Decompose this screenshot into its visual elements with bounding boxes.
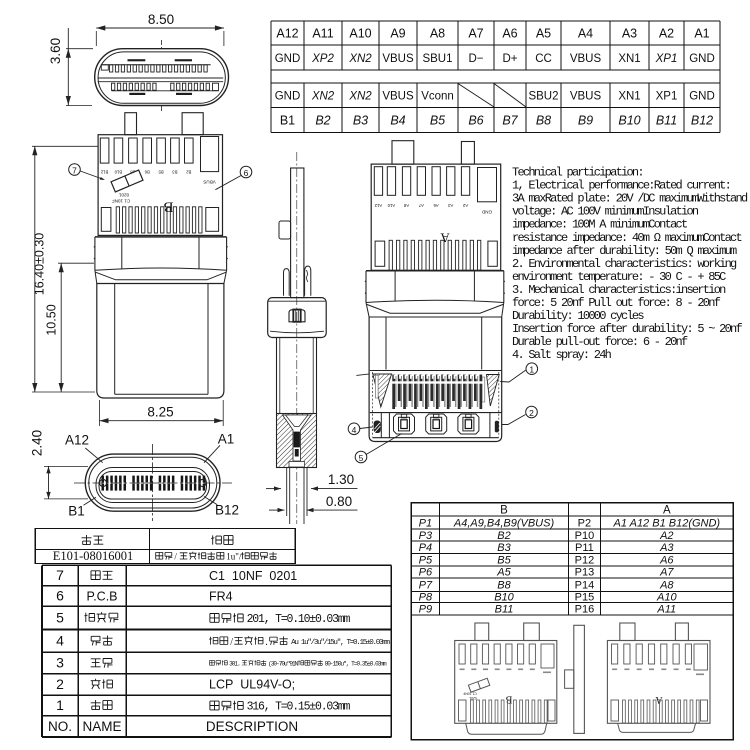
svg-text:8.50: 8.50 [148,12,174,27]
svg-text:A1 A12 B1 B12(GND): A1 A12 B1 B12(GND) [613,517,721,529]
svg-text:16.40±0.30: 16.40±0.30 [33,233,47,296]
svg-text:D+: D+ [502,53,517,65]
svg-text:7: 7 [56,567,64,583]
svg-text:A7: A7 [659,567,674,579]
svg-text:B2: B2 [497,530,510,542]
svg-text:B12: B12 [100,170,108,175]
svg-text:NO.: NO. [48,719,72,734]
svg-text:1: 1 [529,365,534,375]
svg-text:B6: B6 [468,114,483,128]
svg-text:A3: A3 [659,542,674,554]
svg-text:A2: A2 [462,203,468,208]
svg-text:2.40: 2.40 [30,430,45,456]
svg-text:3A maxRated plate: 20V /DC max: 3A maxRated plate: 20V /DC maximumWithst… [512,192,748,206]
svg-text:A4,A9,B4,B9(VBUS): A4,A9,B4,B9(VBUS) [453,517,555,529]
svg-text:P13: P13 [575,567,595,579]
svg-text:A12: A12 [65,433,89,448]
svg-text:Durable pull-out force: 6 - 20: Durable pull-out force: 6 - 20nf [512,335,688,349]
svg-text:A4: A4 [578,27,593,41]
svg-text:0201: 0201 [469,696,477,700]
svg-text:5: 5 [56,609,64,625]
svg-text:FR4: FR4 [209,589,233,603]
svg-text:B7: B7 [502,114,518,128]
svg-text:SBU2: SBU2 [528,91,558,103]
svg-text:A11: A11 [312,27,333,41]
svg-text:A8: A8 [659,579,674,591]
svg-text:2: 2 [56,676,64,692]
svg-text:B9: B9 [578,114,593,128]
svg-text:GND: GND [481,210,492,215]
svg-text:B2: B2 [186,170,192,175]
svg-text:.: . [265,637,268,648]
svg-text:A5: A5 [536,27,551,41]
svg-text:force: 5 20nf Pull out force:: force: 5 20nf Pull out force: 8 - 20nf [512,296,721,310]
svg-text:P10: P10 [575,530,595,542]
svg-text:P6: P6 [419,567,433,579]
svg-text:4. Salt spray: 24h: 4. Salt spray: 24h [512,348,612,362]
svg-text:0201: 0201 [118,193,129,198]
svg-text:impedance after durability: 50: impedance after durability: 50m Q maximu… [512,244,737,258]
svg-text:resistance impedance: 40m Ω ma: resistance impedance: 40m Ω maximumConta… [512,231,741,245]
svg-text:P7: P7 [419,579,433,591]
svg-text:201, T=0.10±0.03mm: 201, T=0.10±0.03mm [247,613,351,626]
svg-text:B: B [500,505,508,517]
svg-text:3: 3 [56,655,64,671]
svg-text:3. Mechanical characteristics:: 3. Mechanical characteristics:insertion [512,283,726,297]
svg-text:8.25: 8.25 [147,405,173,420]
svg-text:A: A [663,505,671,517]
svg-text:C1 10NF: C1 10NF [463,692,477,696]
svg-text:P4: P4 [419,542,432,554]
svg-text:A3: A3 [447,203,453,208]
svg-text:0.80: 0.80 [326,494,352,509]
svg-text:CC: CC [535,53,552,65]
svg-text:B5: B5 [430,114,445,128]
svg-text:2: 2 [529,408,534,418]
svg-text:1.30: 1.30 [328,472,354,487]
svg-text:A6: A6 [659,554,674,566]
svg-text:1: 1 [56,697,64,713]
svg-text:A12: A12 [276,27,298,41]
svg-text:A6: A6 [502,27,517,41]
svg-text:B: B [505,694,512,705]
svg-text:P3: P3 [419,530,433,542]
svg-text:D−: D− [468,53,483,65]
svg-text:5: 5 [359,453,364,463]
svg-text:80-150u", T=0.35±0.03mm: 80-150u", T=0.35±0.03mm [325,661,387,668]
svg-text:P14: P14 [575,579,595,591]
svg-text:E101-08016001: E101-08016001 [53,549,134,563]
svg-text:P11: P11 [575,542,594,554]
svg-text:P2: P2 [578,517,591,529]
svg-text:XN2: XN2 [348,91,372,103]
svg-text:/: / [230,637,233,648]
svg-text:4: 4 [56,633,64,649]
svg-text:C1 10NF 0201: C1 10NF 0201 [209,569,297,583]
svg-text:XN1: XN1 [618,53,640,65]
svg-text:A3: A3 [622,27,637,41]
svg-text:B8: B8 [497,579,511,591]
svg-text:Vconn: Vconn [421,91,454,103]
svg-text:A8: A8 [403,203,409,208]
svg-text:B10: B10 [618,114,640,128]
svg-text:A7: A7 [468,27,483,41]
svg-text:VBUS: VBUS [570,91,602,103]
svg-text:GND: GND [275,91,301,103]
svg-text:LCP UL94V-O;: LCP UL94V-O; [209,678,295,692]
svg-text:A10: A10 [656,592,677,604]
svg-text:P16: P16 [575,604,595,616]
svg-text:GND: GND [689,53,715,65]
svg-text:SBU1: SBU1 [422,53,452,65]
svg-text:B5: B5 [158,170,164,175]
svg-text:B10: B10 [114,170,122,175]
svg-text:P1: P1 [419,517,432,529]
svg-text:VBUS: VBUS [382,91,414,103]
svg-text:6: 6 [56,588,64,604]
svg-text:NAME: NAME [82,719,121,734]
svg-text:Insertion force after durabili: Insertion force after durability: 5 ~ 20… [512,322,742,336]
svg-text:A6: A6 [433,203,439,208]
svg-text:3.60: 3.60 [48,38,63,64]
svg-text:P12: P12 [575,554,595,566]
svg-text:B3: B3 [497,542,511,554]
svg-text:1u"/: 1u"/ [226,552,242,562]
svg-text:A2: A2 [659,530,673,542]
svg-text:VBUS: VBUS [570,53,602,65]
svg-text:A1: A1 [218,432,235,447]
svg-text:VBUS: VBUS [382,53,414,65]
svg-text:XN1: XN1 [618,91,640,103]
svg-text:B11: B11 [495,604,514,616]
svg-text:XP1: XP1 [655,53,678,65]
svg-text:A8: A8 [430,27,445,41]
svg-text:B10: B10 [494,592,514,604]
svg-text:B5: B5 [497,554,511,566]
svg-text:B3: B3 [172,170,178,175]
svg-text:A1: A1 [694,27,709,41]
svg-text:B1: B1 [280,114,295,128]
svg-text:XP2: XP2 [311,53,334,65]
svg-text:2. Environmental characteristi: 2. Environmental characteristics: workin… [512,257,737,271]
svg-text:A2: A2 [659,27,674,41]
svg-text:A7: A7 [418,203,424,208]
svg-text:10.50: 10.50 [45,304,59,335]
svg-text:P9: P9 [419,604,432,616]
svg-text:DESCRIPTION: DESCRIPTION [206,719,298,734]
svg-text:B11: B11 [656,114,677,128]
svg-text:7: 7 [72,166,77,176]
svg-text:VBUS: VBUS [203,180,216,185]
svg-text:B6: B6 [144,170,150,175]
svg-text:A11: A11 [656,604,676,616]
svg-text:GND: GND [689,91,715,103]
svg-text:B12: B12 [691,114,713,128]
svg-text:A9: A9 [390,27,405,41]
svg-text:P8: P8 [419,592,433,604]
svg-text:B12: B12 [215,503,239,518]
svg-text:A10: A10 [387,203,395,208]
svg-text:6: 6 [244,168,249,178]
svg-text:GND: GND [275,53,301,65]
svg-text:P5: P5 [419,554,433,566]
svg-text:P.C.B: P.C.B [86,590,117,604]
svg-text:A10: A10 [349,27,371,41]
svg-text:voltage: AC 100V minimumInsula: voltage: AC 100V minimumInsulation [512,205,699,219]
svg-text:B3: B3 [353,114,368,128]
svg-text:B4: B4 [390,114,405,128]
svg-text:Durability: 10000 cycles: Durability: 10000 cycles [512,309,644,323]
svg-text:XN2: XN2 [348,53,372,65]
svg-text:Au 1u"/3u"/15u", T=0.15±0.03mm: Au 1u"/3u"/15u", T=0.15±0.03mm [291,639,390,647]
svg-text:301.: 301. [229,661,240,668]
svg-text:environment temperature: - 30: environment temperature: - 30 C - + 85C [512,270,726,284]
svg-text:Technical participation:: Technical participation: [512,166,643,180]
svg-text:A12: A12 [374,203,382,208]
svg-text:B2: B2 [315,114,330,128]
svg-text:316, T=0.15±0.03mm: 316, T=0.15±0.03mm [247,701,351,714]
svg-text:impedance: 100M A minimumConta: impedance: 100M A minimumContact [512,218,687,232]
svg-text:4: 4 [352,425,357,435]
svg-text:XN2: XN2 [311,91,335,103]
svg-text:B1: B1 [68,504,85,519]
svg-text:P15: P15 [575,592,595,604]
svg-text:1, Electrical performance:Rate: 1, Electrical performance:Rated current: [512,179,730,193]
svg-text:C1 10NF: C1 10NF [112,199,131,204]
svg-text:B8: B8 [536,114,551,128]
svg-text:(30-70u"91N: (30-70u"91N [268,661,299,668]
svg-text:XP1: XP1 [656,91,678,103]
svg-text:A5: A5 [496,567,511,579]
